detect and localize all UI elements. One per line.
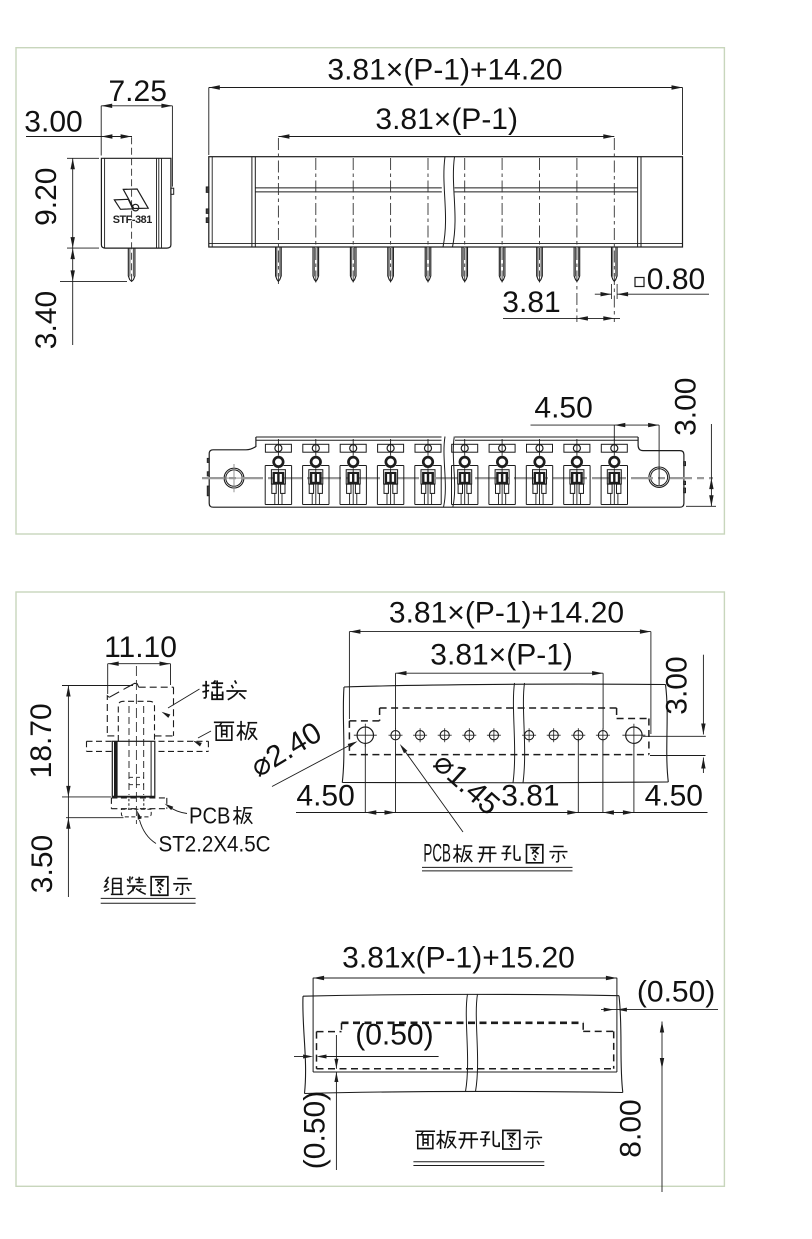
svg-text:(0.50): (0.50) <box>299 1091 332 1169</box>
svg-text:PCB: PCB <box>423 839 451 867</box>
svg-text:3.81: 3.81 <box>502 286 560 319</box>
svg-text:3.81: 3.81 <box>501 780 559 813</box>
svg-text:3.00: 3.00 <box>661 656 694 714</box>
svg-text:4.50: 4.50 <box>645 780 703 813</box>
svg-text:18.70: 18.70 <box>25 703 58 778</box>
svg-text:3.81x(P-1)+15.20: 3.81x(P-1)+15.20 <box>342 942 575 975</box>
svg-text:3.81×(P-1)+14.20: 3.81×(P-1)+14.20 <box>389 597 624 630</box>
svg-text:0.80: 0.80 <box>647 263 705 296</box>
svg-text:3.50: 3.50 <box>26 835 59 893</box>
svg-text:PCB: PCB <box>189 803 231 829</box>
svg-text:8.00: 8.00 <box>615 1099 648 1157</box>
svg-text:9.20: 9.20 <box>30 168 63 226</box>
svg-text:11.10: 11.10 <box>104 631 177 664</box>
svg-text:STF-381: STF-381 <box>113 214 153 226</box>
svg-text:3.00: 3.00 <box>669 378 702 436</box>
svg-text:3.81×(P-1): 3.81×(P-1) <box>375 103 518 136</box>
svg-text:ST2.2X4.5C: ST2.2X4.5C <box>159 831 271 856</box>
svg-text:7.25: 7.25 <box>109 75 167 108</box>
svg-text:3.00: 3.00 <box>24 106 82 139</box>
svg-text:(0.50): (0.50) <box>355 1019 433 1052</box>
svg-text:3.81×(P-1): 3.81×(P-1) <box>430 639 573 672</box>
svg-text:3.40: 3.40 <box>30 291 63 349</box>
svg-text:4.50: 4.50 <box>296 780 354 813</box>
svg-text:3.81×(P-1)+14.20: 3.81×(P-1)+14.20 <box>327 54 562 87</box>
svg-text:(0.50): (0.50) <box>637 976 715 1009</box>
svg-text:4.50: 4.50 <box>534 392 592 425</box>
